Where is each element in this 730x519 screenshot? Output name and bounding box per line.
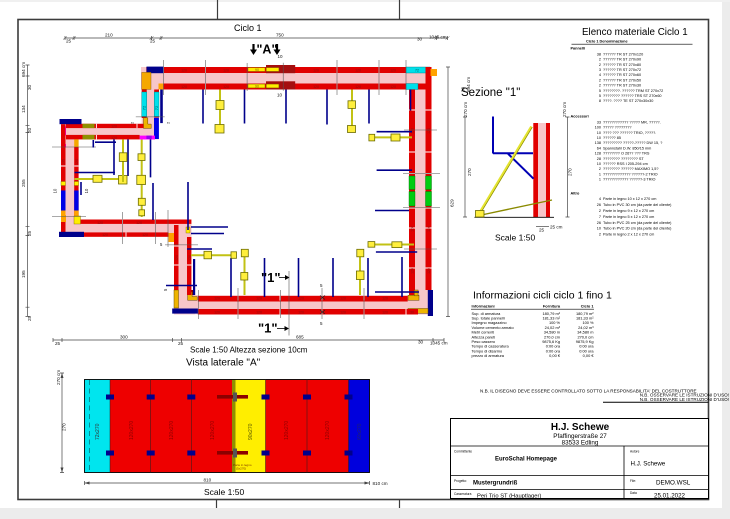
svg-text:?????? TR ST 270x120: ?????? TR ST 270x120 bbox=[603, 52, 643, 56]
svg-text:120: 120 bbox=[313, 69, 319, 73]
svg-text:???????? O 26?? ??? TRS: ???????? O 26?? ??? TRS bbox=[603, 152, 650, 156]
svg-text:26: 26 bbox=[597, 221, 601, 225]
svg-text:Scale 1:50 Altezza sezione 1: Scale 1:50 Altezza sezione 10cm bbox=[190, 346, 308, 355]
svg-text:20: 20 bbox=[27, 127, 32, 133]
svg-text:5: 5 bbox=[599, 89, 601, 93]
svg-text:2: 2 bbox=[599, 58, 601, 62]
svg-text:4: 4 bbox=[599, 197, 601, 201]
svg-text:Pannelli: Pannelli bbox=[571, 46, 586, 50]
svg-text:Ciclo 1: Ciclo 1 bbox=[581, 304, 595, 309]
svg-text:120: 120 bbox=[111, 136, 117, 140]
svg-text:120: 120 bbox=[355, 85, 361, 89]
svg-text:300: 300 bbox=[120, 335, 128, 340]
svg-text:Tubo in PVC 25 cm (da parte de: Tubo in PVC 25 cm (da parte del cliente) bbox=[603, 221, 672, 225]
svg-text:195: 195 bbox=[21, 270, 26, 278]
svg-text:120: 120 bbox=[102, 233, 108, 237]
svg-text:???????????? ??????-3 TRIO: ???????????? ??????-3 TRIO bbox=[603, 178, 656, 182]
svg-text:Parte in legno 2 x 12 x 270 cm: Parte in legno 2 x 12 x 270 cm bbox=[603, 233, 654, 237]
svg-text:Parte in legno 9 x 12 x 270 cm: Parte in legno 9 x 12 x 270 cm bbox=[603, 209, 654, 213]
svg-text:????? ????????: ????? ???????? bbox=[603, 126, 632, 130]
svg-text:Scale 1:50: Scale 1:50 bbox=[495, 233, 535, 243]
svg-text:Committente: Committente bbox=[454, 450, 472, 454]
svg-text:26: 26 bbox=[597, 203, 601, 207]
svg-text:810: 810 bbox=[204, 478, 212, 483]
svg-text:Data: Data bbox=[630, 491, 637, 495]
svg-text:10: 10 bbox=[597, 227, 601, 231]
svg-text:2: 2 bbox=[599, 233, 601, 237]
svg-text:120: 120 bbox=[256, 311, 262, 315]
svg-text:25: 25 bbox=[66, 39, 72, 44]
svg-text:120: 120 bbox=[223, 85, 229, 89]
svg-text:25: 25 bbox=[178, 341, 184, 346]
svg-text:Parte in legno 10 x 12 x 270 c: Parte in legno 10 x 12 x 270 cm bbox=[603, 197, 656, 201]
svg-text:Parte in legno 5 x 12 x 270 cm: Parte in legno 5 x 12 x 270 cm bbox=[603, 215, 654, 219]
svg-text:????????? ?????-????? DW 15, ?: ????????? ?????-????? DW 15, ? bbox=[603, 141, 662, 145]
svg-text:120: 120 bbox=[214, 297, 220, 301]
svg-text:30: 30 bbox=[417, 37, 423, 42]
svg-text:2: 2 bbox=[599, 84, 601, 88]
svg-text:2: 2 bbox=[599, 78, 601, 82]
svg-text:10: 10 bbox=[277, 93, 283, 98]
svg-text:Spannstahl D.W. 850/15 mm: Spannstahl D.W. 850/15 mm bbox=[603, 146, 651, 150]
svg-text:120: 120 bbox=[111, 125, 117, 129]
svg-text:120: 120 bbox=[75, 159, 79, 165]
svg-text:25: 25 bbox=[27, 230, 32, 236]
svg-text:120: 120 bbox=[411, 268, 415, 274]
svg-text:38: 38 bbox=[597, 52, 601, 56]
svg-text:694 cm: 694 cm bbox=[21, 62, 26, 77]
svg-text:120: 120 bbox=[214, 311, 220, 315]
svg-text:(5x270): (5x270) bbox=[236, 467, 246, 471]
svg-text:134: 134 bbox=[21, 105, 26, 113]
svg-text:72: 72 bbox=[154, 105, 159, 110]
svg-text:120: 120 bbox=[390, 85, 396, 89]
svg-text:120x270: 120x270 bbox=[325, 421, 331, 440]
svg-text:Tubo in PVC 20 cm (da parte de: Tubo in PVC 20 cm (da parte del cliente) bbox=[603, 227, 672, 231]
svg-text:120: 120 bbox=[355, 69, 361, 73]
svg-text:10: 10 bbox=[597, 131, 601, 135]
svg-text:100: 100 bbox=[595, 126, 601, 130]
svg-text:810 cm: 810 cm bbox=[373, 481, 388, 486]
svg-text:72x270: 72x270 bbox=[95, 423, 101, 440]
svg-text:120x270: 120x270 bbox=[169, 421, 175, 440]
svg-text:H.J. Schewe: H.J. Schewe bbox=[551, 422, 610, 433]
svg-text:Vista laterale "A": Vista laterale "A" bbox=[186, 358, 261, 369]
svg-text:Ciclo 1 Denominazione: Ciclo 1 Denominazione bbox=[586, 39, 628, 43]
svg-text:Tubo in PVC 30 cm (da parte de: Tubo in PVC 30 cm (da parte del cliente) bbox=[603, 203, 672, 207]
svg-text:270: 270 bbox=[467, 168, 472, 176]
svg-text:"1": "1" bbox=[261, 270, 281, 285]
svg-text:25: 25 bbox=[55, 341, 61, 346]
svg-text:270: 270 bbox=[62, 423, 67, 431]
svg-text:Altro: Altro bbox=[571, 191, 581, 195]
svg-text:120x270: 120x270 bbox=[129, 421, 135, 440]
svg-text:?????? TR ST 270x30: ?????? TR ST 270x30 bbox=[603, 84, 641, 88]
svg-text:Elenco materiale Ciclo 1: Elenco materiale Ciclo 1 bbox=[582, 27, 688, 38]
svg-text:72: 72 bbox=[415, 69, 419, 73]
svg-text:????????????? ??????-2 TRIO: ????????????? ??????-2 TRIO bbox=[603, 172, 658, 176]
svg-text:120: 120 bbox=[298, 311, 304, 315]
svg-text:30: 30 bbox=[410, 311, 414, 315]
svg-text:Informazioni: Informazioni bbox=[472, 304, 495, 309]
svg-text:120: 120 bbox=[411, 226, 415, 232]
svg-text:0,00 €: 0,00 € bbox=[549, 353, 561, 358]
svg-text:120: 120 bbox=[175, 255, 179, 261]
svg-text:25.01.2022: 25.01.2022 bbox=[654, 492, 686, 499]
svg-text:210: 210 bbox=[105, 33, 113, 38]
svg-text:DEMO.WSL: DEMO.WSL bbox=[656, 480, 691, 487]
svg-text:120: 120 bbox=[181, 69, 187, 73]
svg-text:120: 120 bbox=[382, 297, 388, 301]
svg-text:4: 4 bbox=[599, 73, 601, 77]
svg-text:10: 10 bbox=[53, 188, 58, 193]
svg-text:120: 120 bbox=[223, 69, 229, 73]
svg-text:?????? RSS I 205-294 cm: ?????? RSS I 205-294 cm bbox=[603, 162, 648, 166]
svg-text:????. ???? TE ST 270x30x30: ????. ???? TE ST 270x30x30 bbox=[603, 99, 653, 103]
svg-text:1045 cm: 1045 cm bbox=[429, 35, 447, 40]
svg-text:120: 120 bbox=[427, 226, 431, 232]
svg-text:10: 10 bbox=[597, 136, 601, 140]
svg-text:120: 120 bbox=[298, 297, 304, 301]
svg-text:Fornitura: Fornitura bbox=[543, 304, 561, 309]
svg-text:33: 33 bbox=[597, 120, 601, 124]
svg-text:83533 Edling: 83533 Edling bbox=[562, 439, 599, 446]
svg-text:1045 cm: 1045 cm bbox=[430, 341, 448, 346]
svg-text:3: 3 bbox=[599, 68, 601, 72]
svg-text:120: 120 bbox=[97, 221, 103, 225]
svg-text:1: 1 bbox=[599, 172, 601, 176]
svg-text:138: 138 bbox=[595, 141, 601, 145]
svg-text:135: 135 bbox=[62, 159, 66, 165]
svg-text:60x270: 60x270 bbox=[357, 423, 363, 440]
svg-text:Scale 1:50: Scale 1:50 bbox=[204, 487, 244, 497]
svg-text:2: 2 bbox=[599, 167, 601, 171]
svg-text:270 cm: 270 cm bbox=[562, 102, 567, 117]
svg-text:5: 5 bbox=[599, 94, 601, 98]
svg-text:120: 120 bbox=[256, 297, 262, 301]
svg-text:H.J. Schewe: H.J. Schewe bbox=[631, 461, 666, 468]
svg-text:Mustergrundriß: Mustergrundriß bbox=[473, 481, 518, 487]
svg-text:120: 120 bbox=[181, 85, 187, 89]
svg-text:Informazioni cicli ciclo 1 fi: Informazioni cicli ciclo 1 fino 1 bbox=[473, 290, 612, 302]
svg-text:10: 10 bbox=[278, 54, 284, 59]
svg-text:?????? TR ST 270x50: ?????? TR ST 270x50 bbox=[603, 78, 641, 82]
svg-text:Accessori: Accessori bbox=[571, 115, 589, 119]
svg-text:????????. ?????? TRM ST 270x72: ????????. ?????? TRM ST 270x72 bbox=[603, 89, 663, 93]
svg-text:270 cm: 270 cm bbox=[56, 370, 61, 385]
svg-text:prezzo di armatura: prezzo di armatura bbox=[472, 353, 505, 358]
svg-text:EuroSchal Homepage: EuroSchal Homepage bbox=[495, 457, 558, 463]
svg-text:?????? 85: ?????? 85 bbox=[603, 136, 621, 140]
svg-text:Ciclo 1: Ciclo 1 bbox=[234, 23, 262, 33]
svg-text:120: 120 bbox=[382, 311, 388, 315]
svg-text:64: 64 bbox=[597, 146, 601, 150]
svg-text:25 cm: 25 cm bbox=[550, 225, 563, 230]
svg-text:10: 10 bbox=[597, 162, 601, 166]
svg-text:???????? ???????? ST: ???????? ???????? ST bbox=[603, 157, 644, 161]
svg-text:30: 30 bbox=[418, 340, 424, 345]
svg-text:"A": "A" bbox=[257, 43, 278, 57]
svg-text:Sezione "1": Sezione "1" bbox=[461, 87, 520, 99]
svg-text:?????? TR ST 270x60: ?????? TR ST 270x60 bbox=[603, 73, 641, 77]
svg-text:28: 28 bbox=[597, 157, 601, 161]
svg-text:120: 120 bbox=[390, 69, 396, 73]
svg-text:Progetto:: Progetto: bbox=[454, 479, 467, 483]
svg-text:10: 10 bbox=[84, 188, 89, 193]
svg-text:120: 120 bbox=[340, 311, 346, 315]
svg-text:120: 120 bbox=[136, 221, 142, 225]
svg-text:Peri Trio ST (Hauptlager): Peri Trio ST (Hauptlager) bbox=[477, 493, 541, 499]
svg-text:???????? ?????? TRS ST 270x60: ???????? ?????? TRS ST 270x60 bbox=[603, 94, 662, 98]
svg-text:685: 685 bbox=[296, 335, 304, 340]
svg-text:???????? ?????? MAXIMO 1,5?: ???????? ?????? MAXIMO 1,5? bbox=[603, 167, 659, 171]
svg-text:750: 750 bbox=[276, 33, 284, 38]
svg-text:"1": "1" bbox=[258, 321, 278, 336]
svg-text:2: 2 bbox=[599, 209, 601, 213]
svg-text:File:: File: bbox=[630, 479, 636, 483]
svg-text:1: 1 bbox=[599, 178, 601, 182]
svg-text:120: 120 bbox=[427, 128, 431, 134]
svg-text:???? ??? ?????? TRIO, ?????.: ???? ??? ?????? TRIO, ?????. bbox=[603, 131, 656, 135]
svg-text:8: 8 bbox=[599, 99, 601, 103]
svg-text:0,00 €: 0,00 € bbox=[583, 353, 595, 358]
svg-text:255: 255 bbox=[21, 179, 26, 187]
svg-text:90: 90 bbox=[255, 84, 259, 88]
svg-text:Casseratura: Casseratura bbox=[454, 492, 472, 496]
svg-text:270: 270 bbox=[568, 168, 573, 176]
svg-text:N.B. OSSERVARE LE ISTRUZIONI D: N.B. OSSERVARE LE ISTRUZIONI D'USO! bbox=[640, 397, 729, 402]
svg-text:90: 90 bbox=[255, 68, 259, 72]
svg-text:120: 120 bbox=[313, 85, 319, 89]
svg-text:120: 120 bbox=[340, 297, 346, 301]
svg-text:?????? TR ST 270x72: ?????? TR ST 270x72 bbox=[603, 68, 641, 72]
svg-text:90x270: 90x270 bbox=[248, 423, 254, 440]
svg-text:???????????? ????? MR, ?????.: ???????????? ????? MR, ?????. bbox=[603, 120, 661, 124]
svg-text:25: 25 bbox=[150, 39, 156, 44]
svg-text:?????? TR ST 270x90: ?????? TR ST 270x90 bbox=[603, 58, 641, 62]
svg-text:270 cm: 270 cm bbox=[463, 102, 468, 117]
svg-text:120: 120 bbox=[427, 268, 431, 274]
svg-text:30: 30 bbox=[27, 84, 32, 90]
svg-text:?????? TR ST 270x80: ?????? TR ST 270x80 bbox=[603, 63, 641, 67]
svg-text:Autore: Autore bbox=[630, 450, 640, 454]
svg-text:72: 72 bbox=[142, 105, 147, 110]
svg-text:629: 629 bbox=[450, 199, 455, 207]
svg-text:25: 25 bbox=[539, 228, 545, 233]
svg-text:7: 7 bbox=[599, 215, 601, 219]
svg-text:2: 2 bbox=[599, 63, 601, 67]
svg-text:120: 120 bbox=[142, 233, 148, 237]
svg-text:25: 25 bbox=[27, 315, 32, 321]
svg-text:120x270: 120x270 bbox=[284, 421, 290, 440]
svg-text:128: 128 bbox=[595, 152, 601, 156]
svg-text:120x270: 120x270 bbox=[210, 421, 216, 440]
